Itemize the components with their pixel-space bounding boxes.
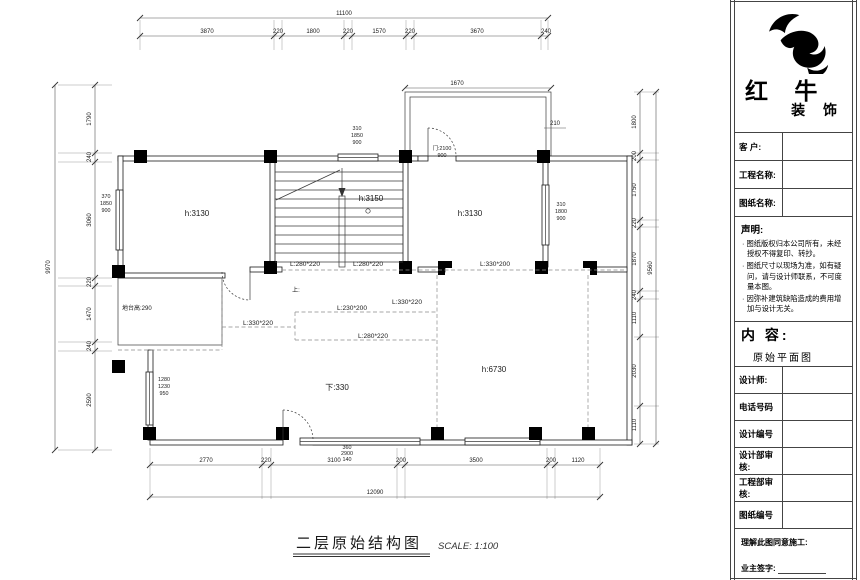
field-value	[783, 448, 852, 474]
dim-label: 12090	[367, 490, 384, 496]
dim-label: 1870	[632, 252, 638, 266]
beam-label: L:330*220	[243, 320, 273, 327]
dim-label: 1670	[450, 81, 464, 87]
dim-label: 1800	[306, 29, 320, 35]
dim-label: 240	[87, 151, 93, 162]
field-value	[783, 367, 852, 393]
field-value	[783, 421, 852, 447]
beam-label: L:280*220	[358, 333, 388, 340]
field-label: 图纸名称:	[735, 189, 783, 216]
content-section: 内 容: 原始平面图	[735, 322, 852, 367]
dim-label: 9970	[46, 260, 52, 274]
step-down-label: 下:330	[325, 383, 349, 392]
field-value	[783, 133, 852, 160]
dim-label: 240	[87, 340, 93, 351]
window-spec: 310	[557, 202, 566, 208]
dim-label: 220	[273, 29, 284, 35]
windows	[116, 154, 549, 445]
dim-label: 3060	[87, 213, 93, 227]
dim-label: 3100	[327, 458, 341, 464]
construction-agreement-label: 理解此图同意施工:	[741, 537, 848, 548]
dim-left: 9970 1790 240 3060 220 1470 240 2590	[46, 82, 98, 453]
dim-label: 3870	[200, 29, 214, 35]
field-label: 设计部审核:	[735, 448, 783, 474]
dim-top: 11100 3870 220 1800 220 1570 220 3670 24…	[137, 11, 552, 39]
window-spec: 370	[102, 194, 111, 200]
dim-label: 1570	[372, 29, 386, 35]
field-label: 工程部审核:	[735, 475, 783, 501]
field-row-engineering-audit: 工程部审核:	[735, 475, 852, 502]
field-value	[783, 475, 852, 501]
brand-logo-icon	[759, 8, 831, 74]
room-label-living: h:6730	[482, 365, 507, 374]
window-spec: 950	[160, 391, 169, 397]
dim-label: 240	[541, 29, 552, 35]
window-spec: 900	[353, 140, 362, 146]
signature-line	[778, 563, 826, 574]
dim-label: 240	[632, 289, 638, 300]
window-spec: 310	[353, 126, 362, 132]
beam-label: L:230*200	[337, 305, 367, 312]
doors	[222, 128, 456, 440]
field-row-customer: 客 户:	[735, 133, 852, 161]
field-value	[783, 394, 852, 420]
owner-signature-label: 业主签字:	[741, 563, 776, 574]
beam-label: L:330*200	[480, 261, 510, 268]
door-label: 门:2100	[433, 144, 452, 152]
statement-item: 因弥补建筑缺陷造成的费用增加与设计无关。	[747, 294, 848, 314]
dim-label: 9560	[648, 261, 654, 275]
window-spec: 1850	[351, 133, 363, 139]
dim-label: 3500	[469, 458, 483, 464]
statement-item: 图纸版权归本公司所有，未经授权不得复印、转抄。	[747, 239, 848, 259]
dim-label: 1120	[572, 458, 586, 464]
plan-scale: SCALE: 1:100	[438, 541, 499, 552]
stair-up-label: 上:	[292, 286, 300, 294]
field-row-design-audit: 设计部审核:	[735, 448, 852, 475]
window-spec: 1280	[158, 377, 170, 383]
frame-line	[730, 0, 731, 580]
dim-label: 220	[405, 29, 416, 35]
dim-label: 200	[546, 458, 557, 464]
brand-subname: 装 饰	[791, 100, 844, 120]
title-block: 红 牛 装 饰 客 户: 工程名称: 图纸名称: 声明: 图纸版权归本公司所有，…	[734, 0, 853, 580]
room-label-stair: h:3150	[359, 194, 384, 203]
drawing-title: 二层原始结构图 SCALE: 1:100	[293, 535, 499, 557]
dim-label: 200	[632, 150, 638, 161]
window-spec: 900	[557, 216, 566, 222]
beam-label: L:330*220	[392, 299, 422, 306]
room-labels: h:3130 h:3150 h:3130 h:6730 下:330 地台高:29…	[122, 194, 507, 392]
field-value	[783, 161, 852, 188]
dim-label: 11100	[336, 11, 352, 17]
dim-label: 2590	[87, 393, 93, 407]
dim-label: 1790	[87, 112, 93, 126]
dim-label: 2770	[199, 458, 213, 464]
field-row-design-number: 设计编号	[735, 421, 852, 448]
content-heading: 内 容:	[741, 325, 852, 345]
field-label: 客 户:	[735, 133, 783, 160]
dim-label: 220	[87, 276, 93, 287]
frame-line	[856, 0, 857, 580]
window-specs: 370 1850 900 310 1850 900 310 1800 900 1…	[100, 126, 567, 463]
field-row-designer: 设计师:	[735, 367, 852, 394]
door-label: 900	[438, 153, 447, 159]
balcony: 1670 210	[402, 81, 566, 156]
dim-label: 1470	[87, 307, 93, 321]
columns	[112, 150, 597, 440]
field-row-project-name: 工程名称:	[735, 161, 852, 189]
plan-title: 二层原始结构图	[296, 535, 422, 552]
content-value: 原始平面图	[753, 349, 852, 364]
beam-lines	[118, 270, 627, 427]
window-spec: 1800	[555, 209, 567, 215]
brand-area: 红 牛 装 饰	[735, 0, 852, 133]
statement-section: 声明: 图纸版权归本公司所有，未经授权不得复印、转抄。 图纸尺寸以现场为准，如有…	[735, 217, 852, 322]
dim-label: 3670	[470, 29, 484, 35]
drawing-sheet: 11100 3870 220 1800 220 1570 220 3670 24…	[0, 0, 860, 580]
dim-label: 220	[343, 29, 354, 35]
dim-label: 210	[550, 121, 561, 127]
floor-plan: 11100 3870 220 1800 220 1570 220 3670 24…	[0, 0, 730, 580]
field-row-drawing-number: 图纸编号	[735, 502, 852, 529]
room-label-right: h:3130	[458, 209, 483, 218]
beam-label: L:280*220	[353, 261, 383, 268]
dim-label: 1110	[632, 418, 638, 431]
field-value	[783, 189, 852, 216]
field-label: 图纸编号	[735, 502, 783, 528]
signature-section: 理解此图同意施工: 业主签字:	[735, 529, 852, 580]
window-spec: 900	[102, 208, 111, 214]
field-row-phone: 电话号码	[735, 394, 852, 421]
field-label: 工程名称:	[735, 161, 783, 188]
field-label: 电话号码	[735, 394, 783, 420]
dim-label: 1800	[632, 115, 638, 129]
dim-label: 200	[396, 458, 407, 464]
dim-bottom: 2770 220 3100 200 3500 200 1120 12090	[147, 458, 603, 500]
statement-heading: 声明:	[741, 222, 848, 236]
platform-label: 地台高:290	[122, 304, 152, 312]
dim-label: 1750	[632, 183, 638, 197]
room-label-left: h:3130	[185, 209, 210, 218]
window-spec: 1230	[158, 384, 170, 390]
beam-labels: L:280*220 L:280*220 L:330*200 L:230*200 …	[243, 261, 510, 340]
dim-label: 2030	[632, 364, 638, 378]
dim-right: 1800 200 1750 220 1870 240 1110 2030 111…	[632, 89, 659, 447]
window-spec: 1850	[100, 201, 112, 207]
dim-label: 220	[632, 217, 638, 228]
field-row-drawing-name: 图纸名称:	[735, 189, 852, 217]
field-label: 设计师:	[735, 367, 783, 393]
window-spec: 140	[343, 457, 352, 463]
dim-label: 220	[261, 458, 272, 464]
stair-direction-arrow	[339, 188, 346, 197]
field-label: 设计编号	[735, 421, 783, 447]
statement-item: 图纸尺寸以现场为准，如有疑问，请与设计师联系，不可度量本图。	[747, 261, 848, 292]
field-value	[783, 502, 852, 528]
dim-label: 1110	[632, 311, 638, 324]
beam-label: L:280*220	[290, 261, 320, 268]
staircase	[275, 168, 403, 267]
